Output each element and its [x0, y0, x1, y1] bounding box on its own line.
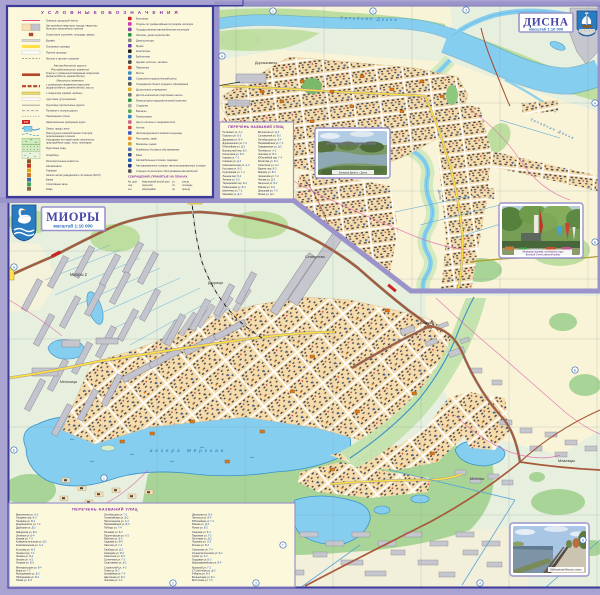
- svg-text:1: 1: [103, 476, 105, 480]
- svg-text:Западная Двина у г. Дисна: Западная Двина у г. Дисна: [339, 173, 368, 175]
- svg-text:Фруктовые сады: Фруктовые сады: [46, 146, 66, 150]
- svg-text:1: 1: [272, 9, 274, 13]
- svg-text:Друйская ул. Д-3: Друйская ул. Д-3: [16, 526, 36, 529]
- svg-text:Чкалова ул. В-3: Чкалова ул. В-3: [258, 153, 277, 156]
- svg-text:Дзержинского ул. Г-2: Дзержинского ул. Г-2: [223, 142, 248, 145]
- svg-text:Таможни: Таможни: [46, 168, 57, 172]
- svg-text:Победы ул. Г-4: Победы ул. Г-4: [104, 526, 122, 529]
- svg-text:Аптеки: Аптеки: [136, 126, 145, 130]
- svg-text:МИОРЫ: МИОРЫ: [46, 210, 100, 224]
- svg-text:Горького ул. Б-3: Горького ул. Б-3: [223, 135, 242, 138]
- svg-text:Поликлиники: Поликлиники: [136, 115, 152, 119]
- svg-text:приусадебные сады, леса, лесоп: приусадебные сады, леса, лесопарки: [46, 141, 92, 145]
- svg-text:Вокзалы: Вокзалы: [136, 109, 146, 113]
- svg-text:Красноармейская ул. В-4: Красноармейская ул. В-4: [192, 562, 222, 565]
- svg-text:Ширшова ул. Г-3: Ширшова ул. Г-3: [258, 189, 278, 192]
- svg-text:Спортивная ул. Д-2: Спортивная ул. Д-2: [104, 562, 127, 565]
- svg-text:Учреждения общего среднего обр: Учреждения общего среднего образования: [136, 82, 189, 86]
- svg-text:ПЕРЕЧЕНЬ НАЗВАНИЙ УЛИЦ: ПЕРЕЧЕНЬ НАЗВАНИЙ УЛИЦ: [72, 508, 138, 512]
- svg-text:Черкасова ул. Г-2: Черкасова ул. Г-2: [258, 175, 279, 178]
- svg-text:Копыловка ул. Б-4: Копыловка ул. Б-4: [223, 153, 245, 156]
- svg-text:Национальные нумерации дорог: Национальные нумерации дорог: [46, 120, 86, 124]
- svg-text:Автомобильные стоянки, парковк: Автомобильные стоянки, парковки: [136, 158, 178, 162]
- svg-text:Первомайская ул. Г-3: Первомайская ул. Г-3: [258, 142, 284, 145]
- svg-text:Куприянова ул. Г-4: Куприянова ул. Г-4: [223, 171, 246, 174]
- svg-text:Р45: Р45: [24, 120, 29, 124]
- svg-text:переулок: переулок: [142, 184, 154, 187]
- svg-text:улица: улица: [182, 181, 189, 184]
- svg-text:Речная ул. В-3: Речная ул. В-3: [192, 544, 210, 547]
- svg-text:Восточная ул. Г-3: Восточная ул. Г-3: [192, 579, 213, 582]
- svg-text:Г: Г: [282, 543, 284, 547]
- svg-text:Советская ул. А-2: Советская ул. А-2: [258, 164, 279, 167]
- svg-text:Ленина пер. Б-2: Ленина пер. Б-2: [223, 175, 242, 178]
- svg-text:Кв. дом: Кв. дом: [128, 181, 137, 184]
- svg-text:пр.: пр.: [172, 188, 176, 191]
- svg-text:пл.: пл.: [172, 184, 176, 187]
- svg-text:Квартирный жилой дом: Квартирный жилой дом: [142, 181, 170, 184]
- svg-text:масштаб 1:10 000: масштаб 1:10 000: [53, 223, 93, 229]
- svg-text:Южная ул. Б-4: Южная ул. Б-4: [258, 186, 276, 189]
- svg-text:грунтовые (улучшенные): грунтовые (улучшенные): [46, 97, 76, 101]
- svg-text:Дворище: Дворище: [208, 281, 223, 285]
- svg-text:Энгельса ул. В-2: Энгельса ул. В-2: [258, 182, 278, 185]
- svg-text:(асфальтобетон, цементобетон): (асфальтобетон, цементобетон): [46, 74, 85, 78]
- svg-text:Чкалова ул. А-2: Чкалова ул. А-2: [104, 579, 123, 582]
- svg-text:Кирова ул. Г-3: Кирова ул. Г-3: [223, 157, 240, 160]
- svg-text:3: 3: [465, 8, 467, 12]
- svg-text:СОКРАЩЕНИЯ, ПРИНЯТЫЕ НА ПЛАНАХ: СОКРАЩЕНИЯ, ПРИНЯТЫЕ НА ПЛАНАХ: [128, 175, 188, 179]
- svg-text:Виленская ул. Д-3: Виленская ул. Д-3: [258, 131, 280, 134]
- svg-text:Центр гигиены и эпидемиологии: Центр гигиены и эпидемиологии: [136, 120, 176, 124]
- svg-text:Светлая ул. Г-2: Светлая ул. Г-2: [104, 544, 123, 547]
- svg-text:2: 2: [172, 581, 174, 585]
- svg-text:Местного значения: Местного значения: [56, 79, 83, 83]
- svg-text:Республиканского значения: Республиканского значения: [51, 68, 89, 72]
- svg-text:У С Л О В Н Ы Е О Б О З Н А: У С Л О В Н Ы Е О Б О З Н А Ч Е Н И Я: [41, 10, 179, 15]
- svg-text:Ясная ул. Д-2: Ясная ул. Д-2: [258, 193, 274, 196]
- svg-text:проезд: проезд: [182, 188, 191, 191]
- svg-text:Библиотеки: Библиотеки: [136, 55, 151, 59]
- svg-text:Великой Отечественной войны: Великой Отечественной войны: [526, 254, 561, 257]
- svg-text:Гражданская ул. Д-2: Гражданская ул. Д-2: [258, 146, 282, 149]
- svg-text:Ленина ул. А-2: Ленина ул. А-2: [223, 178, 241, 181]
- svg-text:Мельница: Мельница: [60, 380, 77, 384]
- svg-text:Социально-педагогический центр: Социально-педагогический центр: [136, 76, 177, 80]
- svg-text:Железнодорожного вокзала подъе: Железнодорожного вокзала подъезды: [136, 131, 182, 135]
- svg-text:Отделы по чрезвычайным ситуаци: Отделы по чрезвычайным ситуациям, милици…: [136, 22, 194, 26]
- svg-text:Кинотеатры: Кинотеатры: [136, 49, 150, 53]
- svg-text:2: 2: [372, 9, 374, 13]
- svg-text:м-н: м-н: [128, 188, 133, 191]
- svg-text:Терешковой пер. Б-3: Терешковой пер. Б-3: [223, 182, 248, 185]
- svg-text:с покрытием (гравий, щебень): с покрытием (гравий, щебень): [46, 91, 83, 95]
- svg-text:Бровки: Бровки: [46, 39, 55, 43]
- svg-text:Кутузова ул. В-3: Кутузова ул. В-3: [223, 168, 243, 171]
- svg-text:микрорайон: микрорайон: [142, 188, 157, 191]
- svg-text:Фрунзе пер. Б-3: Фрунзе пер. Б-3: [258, 168, 277, 171]
- svg-text:Октябрьская ул. Б-4: Октябрьская ул. Б-4: [258, 138, 282, 141]
- svg-text:Комсомольская ул. А-3: Комсомольская ул. А-3: [16, 544, 43, 547]
- svg-text:Записи актов гражданского сост: Записи актов гражданского состояния (ЗАГ…: [46, 173, 101, 177]
- svg-text:Дорожковичи: Дорожковичи: [255, 61, 277, 65]
- svg-text:Автовокзалы: Автовокзалы: [46, 164, 62, 168]
- svg-text:Музеи: Музеи: [136, 44, 144, 48]
- svg-text:Станулево: Станулево: [305, 254, 326, 259]
- svg-text:Государственная автомобильная: Государственная автомобильная инспекция: [136, 27, 190, 31]
- svg-text:Мировая ул. Д-3: Мировая ул. Д-3: [223, 193, 243, 196]
- svg-text:Шевченко ул. Г-2: Шевченко ул. Г-2: [223, 189, 243, 192]
- svg-text:Детско-юношеские спортивные шк: Детско-юношеские спортивные школы: [136, 93, 183, 97]
- svg-text:Путевая ул. А-3: Путевая ул. А-3: [258, 149, 277, 152]
- svg-text:Прочие проезды: Прочие проезды: [46, 51, 67, 55]
- svg-text:ул.: ул.: [172, 181, 176, 184]
- svg-text:Спортивные залы: Спортивные залы: [46, 182, 68, 186]
- svg-text:Пешеходные тропы: Пешеходные тропы: [46, 114, 70, 118]
- svg-text:Автозаправочные станции, автог: Автозаправочные станции, автогазозаправо…: [136, 164, 206, 168]
- svg-text:Озера, пруды, реки: Озера, пруды, реки: [46, 127, 70, 131]
- svg-text:3: 3: [255, 581, 257, 585]
- svg-text:Озёрная ул. Д-2: Озёрная ул. Д-2: [223, 160, 242, 163]
- svg-text:Вокзальный пер. В-2: Вокзальный пер. В-2: [223, 149, 248, 152]
- svg-text:Станции технического обслужива: Станции технического обслуживания автомо…: [136, 169, 198, 173]
- svg-text:Больницы: Больницы: [136, 17, 148, 21]
- svg-text:Набережная Мёрского озера: Набережная Мёрского озера: [551, 570, 582, 572]
- svg-text:Филатова ул. Б-2: Филатова ул. Б-2: [258, 160, 279, 163]
- svg-text:Грунтовые проселочные дороги: Грунтовые проселочные дороги: [46, 103, 85, 107]
- svg-text:Соловьиная ул. В-2: Соловьиная ул. В-2: [258, 135, 281, 138]
- svg-text:больших населенных пунктов: больших населенных пунктов: [46, 27, 84, 31]
- svg-text:Мазевцы: Мазевцы: [558, 458, 575, 463]
- svg-text:Дошкольные учреждения: Дошкольные учреждения: [136, 87, 167, 91]
- svg-text:Комбинаты бытового обслуживани: Комбинаты бытового обслуживания: [136, 147, 180, 151]
- svg-text:Дворовая ул. В-4: Дворовая ул. В-4: [223, 138, 243, 141]
- svg-text:Памятники: Памятники: [136, 66, 150, 70]
- svg-text:Бани: Бани: [136, 153, 143, 157]
- svg-text:(асфальтобетон, цементобетон),: (асфальтобетон, цементобетон), мосты: [46, 86, 94, 90]
- svg-text:ПЕРЕЧЕНЬ НАЗВАНИЙ УЛИЦ: ПЕРЕЧЕНЬ НАЗВАНИЙ УЛИЦ: [228, 125, 284, 129]
- svg-text:Юбилейный пер. Г-4: Юбилейный пер. Г-4: [258, 157, 283, 160]
- svg-text:Набережная ул. В-4: Набережная ул. В-4: [223, 186, 247, 189]
- svg-text:Чехова ул. Д-3: Чехова ул. Д-3: [258, 178, 276, 181]
- svg-text:Стадионы: Стадионы: [136, 104, 148, 108]
- svg-text:Церкви, костелы, часовни: Церкви, костелы, часовни: [136, 60, 168, 64]
- svg-text:Мирная ул. В-4: Мирная ул. В-4: [258, 171, 276, 174]
- svg-text:масштаб 1:10 000: масштаб 1:10 000: [529, 27, 564, 32]
- svg-text:Основные проезды: Основные проезды: [46, 45, 70, 49]
- svg-text:площадь: площадь: [182, 184, 193, 187]
- svg-text:Кафе: Кафе: [46, 187, 53, 191]
- svg-text:Комсомольская ул. А-3: Комсомольская ул. А-3: [223, 164, 250, 167]
- svg-text:Кладбища: Кладбища: [46, 153, 59, 157]
- svg-text:Банки: Банки: [46, 178, 54, 182]
- svg-text:Луговая ул. Б-3: Луговая ул. Б-3: [16, 562, 34, 565]
- svg-text:Дома культуры: Дома культуры: [136, 38, 154, 42]
- svg-text:Исполнительные комитеты: Исполнительные комитеты: [46, 159, 79, 163]
- svg-text:Юбилейная ул. Д-3: Юбилейная ул. Д-3: [223, 146, 246, 149]
- svg-text:Миоры 2: Миоры 2: [70, 272, 88, 277]
- svg-text:Отдельные строения, площади, д: Отдельные строения, площади, дворы: [46, 33, 95, 37]
- svg-text:Полевые и лесные дороги: Полевые и лесные дороги: [46, 109, 78, 113]
- svg-text:Физкультурно-оздоровительный к: Физкультурно-оздоровительный комплекс: [136, 98, 187, 102]
- svg-text:4: 4: [479, 581, 481, 585]
- svg-text:Мосты: Мосты: [136, 71, 144, 75]
- svg-text:Новая ул. Б-4: Новая ул. Б-4: [16, 579, 32, 582]
- svg-text:Рестораны, кафе: Рестораны, кафе: [136, 136, 157, 140]
- svg-text:Граница городской черты: Граница городской черты: [46, 19, 78, 23]
- svg-text:возера Мёрскае: возера Мёрскае: [150, 448, 226, 453]
- svg-text:Ясная ул. В-2: Ясная ул. В-2: [192, 526, 208, 529]
- svg-text:Жилые и прочие строения: Жилые и прочие строения: [46, 57, 80, 61]
- svg-text:Блажки: Блажки: [420, 320, 434, 325]
- svg-text:Лесхозы, дома лесничества: Лесхозы, дома лесничества: [136, 33, 170, 37]
- svg-text:Петровых ул. А-2: Петровых ул. А-2: [223, 131, 244, 134]
- svg-text:пер.: пер.: [128, 184, 133, 187]
- svg-text:Магазины, рынки: Магазины, рынки: [136, 142, 157, 146]
- svg-text:Матюки: Матюки: [470, 476, 484, 481]
